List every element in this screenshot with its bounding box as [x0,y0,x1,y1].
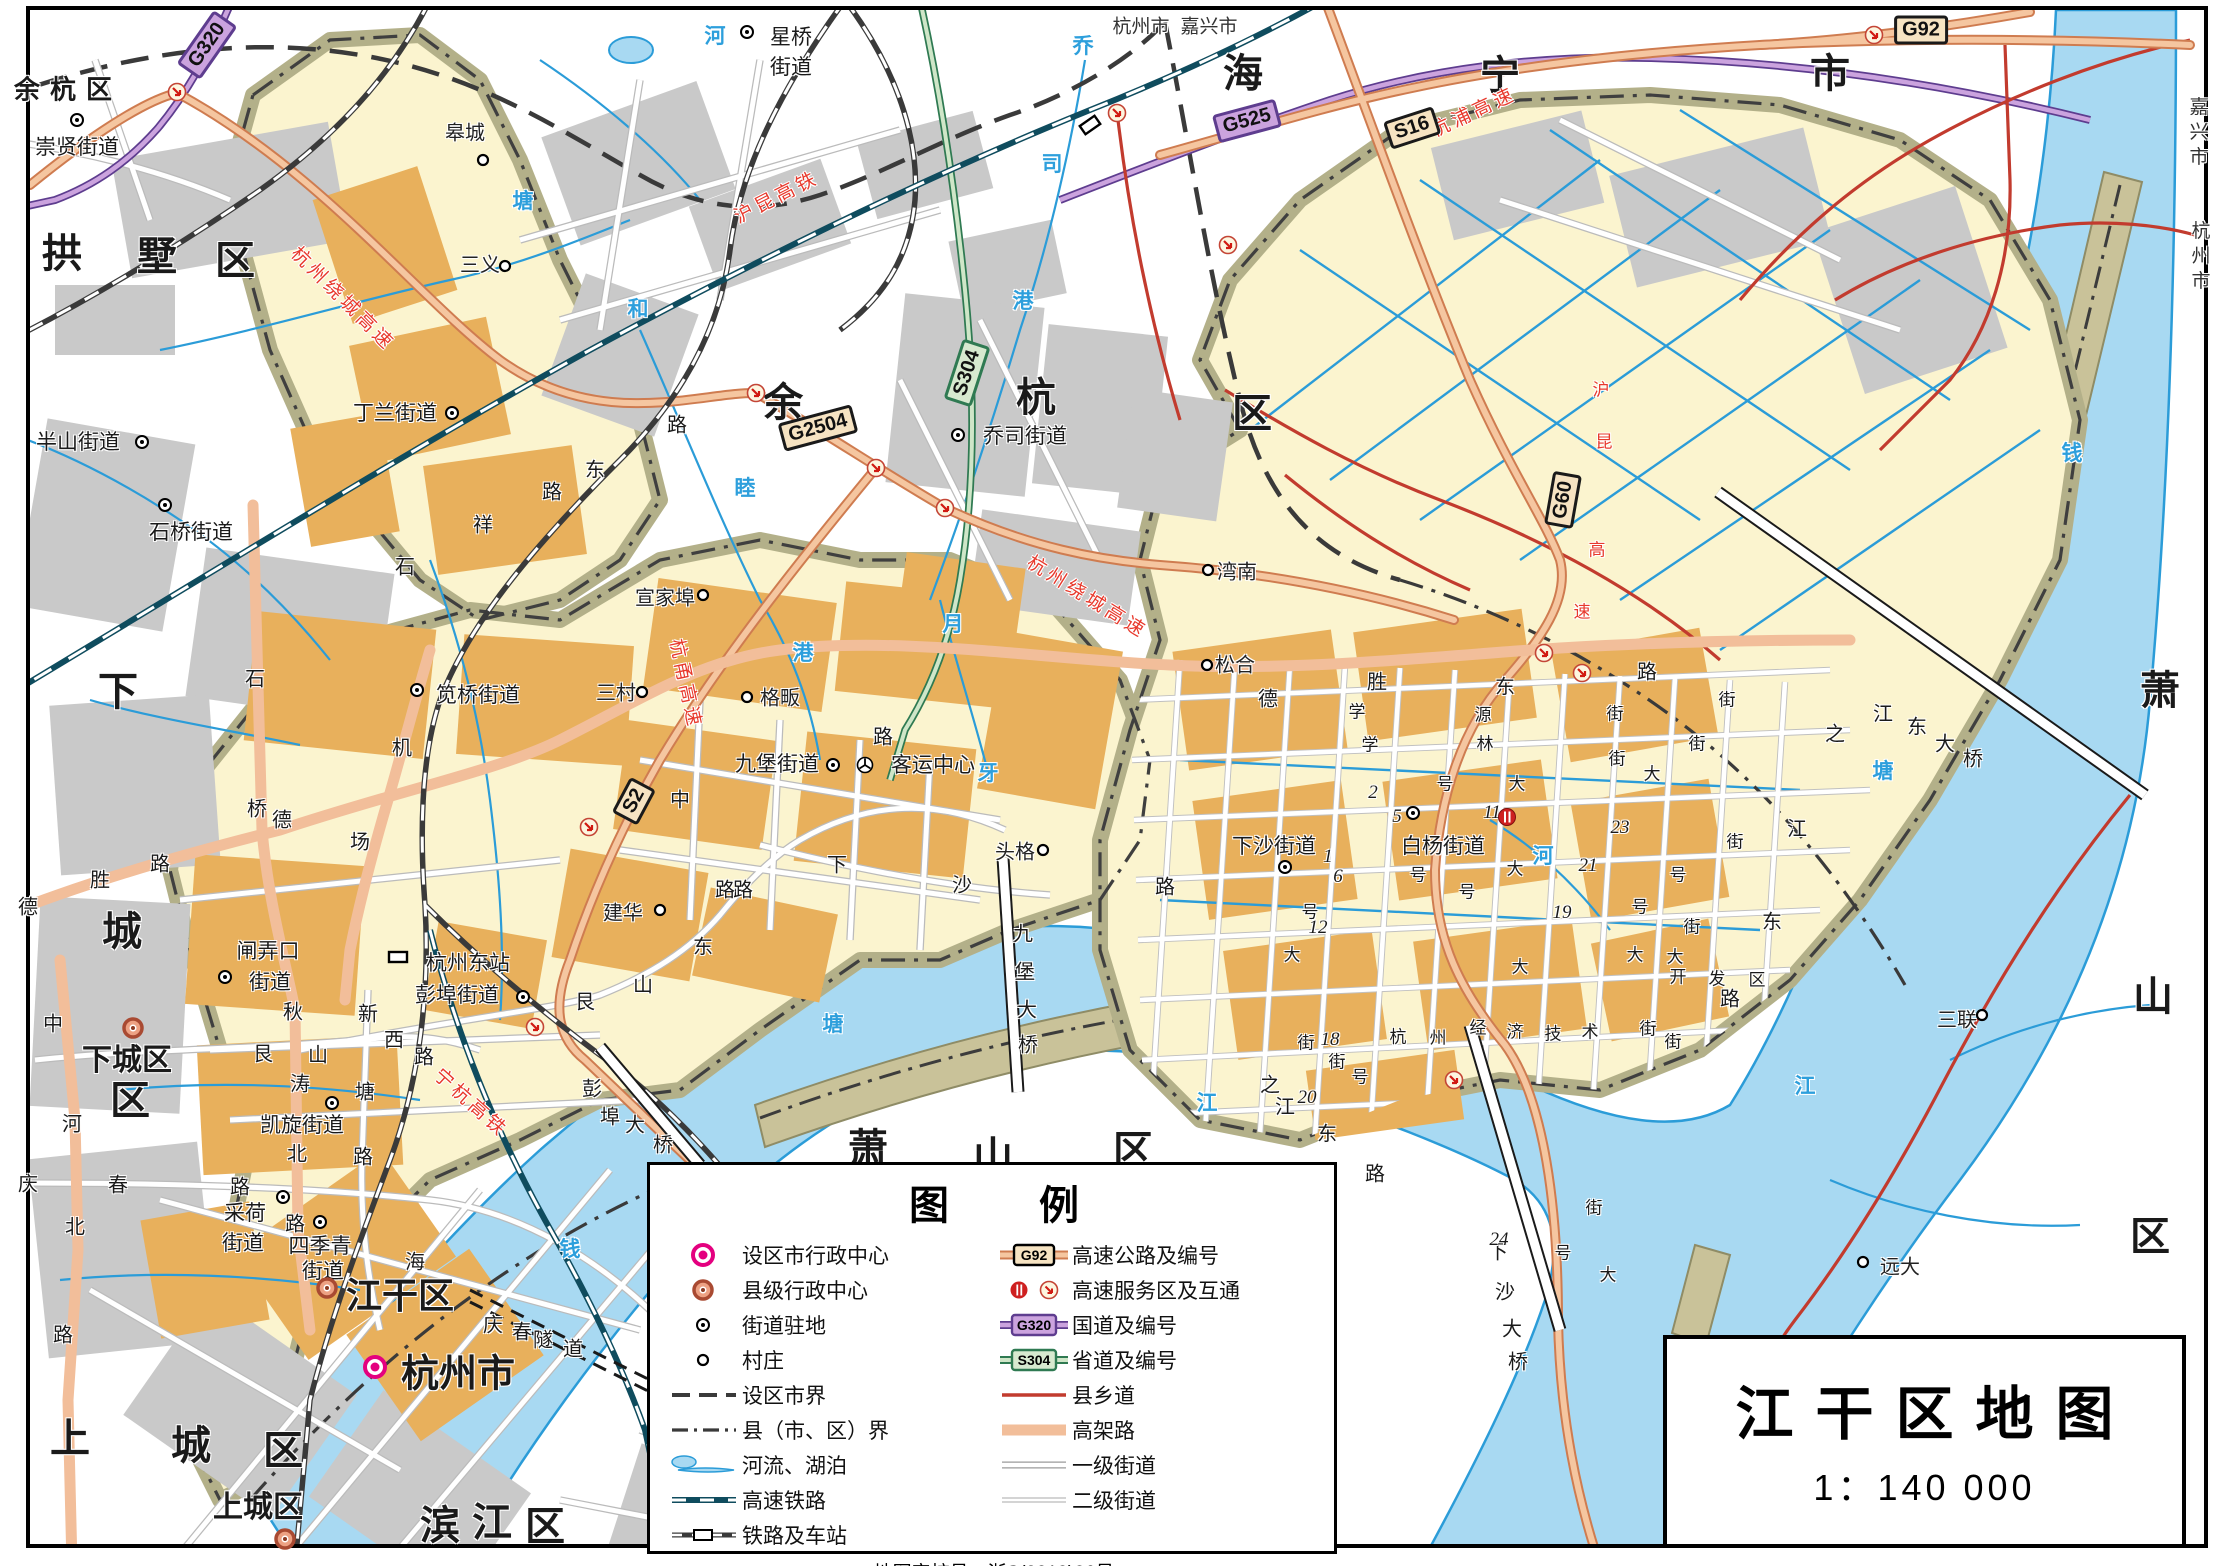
map-label: 技 [1545,1020,1562,1045]
legend-title: 图例 [664,1173,1324,1231]
map-label: 州 [1430,1024,1447,1049]
map-label: 学 [1349,698,1366,723]
water-label: 塘 [513,185,534,215]
map-label: 区 [2130,1204,2170,1262]
map-label: 东 [585,454,605,483]
map-label: 石 [245,663,265,692]
legend-item-right-5: 高架路 [994,1412,1324,1447]
subdistrict-marker [739,24,755,40]
subdistrict-marker [69,112,85,128]
map-label: 东 [1762,906,1782,935]
map-label: 江干区 [346,1267,454,1319]
village-marker [1856,1255,1870,1269]
legend-panel: 图例 设区市行政中心县级行政中心街道驻地村庄设区市界县（市、区）界河流、湖泊高速… [647,1162,1337,1554]
map-label: 石桥街道 [149,516,233,546]
village-marker [1200,658,1214,672]
subdistrict-marker [515,989,531,1005]
map-label: 街 [1586,1194,1603,1219]
interchange-icon [1572,663,1592,683]
interchange-icon [866,458,886,478]
legend-label: 设区市行政中心 [742,1240,889,1270]
interchange-icon [579,817,599,837]
map-label: 区 [215,228,255,286]
map-label: 杭 [1390,1023,1407,1048]
legend-item-left-0: 设区市行政中心 [664,1237,994,1272]
map-label: 20 [1298,1087,1317,1109]
map-label: 街 [1665,1028,1682,1053]
map-label: 路 [353,1141,373,1170]
village-marker [740,690,754,704]
map-label: 号 [1632,893,1649,918]
map-label: 海 [1223,41,1263,99]
map-label: 嘉兴市 [2184,97,2211,172]
village-marker [476,153,490,167]
legend-label: 县（市、区）界 [742,1415,889,1445]
subdistrict-marker [217,969,233,985]
legend-item-right-2: G320国道及编号 [994,1307,1324,1342]
legend-icon-village [664,1353,742,1367]
subdistrict-marker [134,434,150,450]
map-label: 号 [1437,770,1454,795]
map-label: 6 [1333,866,1343,888]
map-label: 笕桥街道 [436,679,520,709]
map-label: 杭州市 [2186,221,2213,296]
map-label: 街 [1689,730,1706,755]
map-label: 街 [1719,686,1736,711]
map-label: 杭州东站 [426,947,510,977]
legend-item-right-0: G92高速公路及编号 [994,1237,1324,1272]
map-label: 桥 [1508,1346,1528,1375]
legend-item-left-5: 县（市、区）界 [664,1412,994,1447]
water-label: 牙 [978,757,999,787]
water-label: 塘 [1873,755,1894,785]
map-label: 秋 [283,996,303,1025]
map-label: 格畈 [760,682,800,711]
legend-item-right-4: 县乡道 [994,1377,1324,1412]
bus-terminal-icon [856,756,874,774]
legend-label: 高速服务区及互通 [1072,1275,1240,1305]
map-label: 江 [472,1490,512,1548]
legend-label: 县级行政中心 [742,1275,868,1305]
map-label: 大 [1507,855,1524,880]
map-label: 隧 [533,1324,553,1353]
legend-label: 铁路及车站 [742,1520,847,1550]
svg-text:S304: S304 [1018,1352,1051,1368]
map-label: 路 [1637,656,1657,685]
map-label: 杭 [1016,365,1056,423]
map-label: 山 [2133,964,2173,1022]
map-label: 彭埠街道 [415,979,499,1009]
map-label: 德 [272,804,292,833]
county-admin-center-marker [120,1015,146,1041]
map-label: 凯旋街道 [260,1109,344,1139]
service-area-icon [1497,807,1517,827]
map-label: 5 [1392,806,1402,828]
subdistrict-marker [157,497,173,513]
map-label: 街 [1727,828,1744,853]
map-label: 经 [1470,1014,1487,1039]
interchange-icon [525,1017,545,1037]
svg-text:G320: G320 [1017,1317,1051,1333]
map-label: 艮 [253,1038,273,1067]
route-shield-G92: G92 [1894,16,1948,45]
water-label: 港 [1013,285,1034,315]
map-label: 嘉兴市 [1180,12,1237,39]
legend-label: 村庄 [742,1345,784,1375]
map-label: 桥 [1963,743,1983,772]
map-label: 场 [350,826,370,855]
county-admin-center-marker [272,1526,298,1552]
map-label: 路 [1155,871,1175,900]
map-label: 德 [1258,683,1278,712]
map-label: 湾南 [1217,556,1257,585]
map-label: 大 [1512,953,1529,978]
legend-label: 县乡道 [1072,1380,1135,1410]
map-label: 余杭区 [14,70,122,107]
map-label: 济 [1507,1018,1524,1043]
map-label: 埠 [600,1101,620,1130]
village-marker [653,903,667,917]
subdistrict-marker [1277,859,1293,875]
map-label: 街道 [249,966,291,996]
legend-icon-railway [664,1528,742,1542]
map-label: 胜 [1367,666,1387,695]
map-label: 大 [1935,728,1955,757]
map-label: 闸弄口 [237,935,300,965]
subdistrict-marker [1405,805,1421,821]
map-label: 头格 [995,836,1035,865]
interchange-icon [1534,643,1554,663]
map-label: 源 [1475,701,1492,726]
map-label: 河 [62,1108,82,1137]
map-label: 市 [1810,41,1850,99]
legend-item-right-1: 高速服务区及互通 [994,1272,1324,1307]
map-label: 街 [1684,913,1701,938]
map-label: 发 [1709,965,1726,990]
map-label: 路 [667,409,687,438]
railway-station-icon [387,950,409,964]
legend-label: 高架路 [1072,1415,1135,1445]
map-label: 中 [670,784,690,813]
map-label: 三村 [596,677,636,706]
map-label: 庆 [483,1309,503,1338]
map-label: 城 [171,1413,211,1471]
city-admin-center-marker [360,1352,390,1382]
map-label: 杭州市 [401,1343,515,1398]
legend-label: 河流、湖泊 [742,1450,847,1480]
legend-label: 设区市界 [742,1380,826,1410]
legend-approval-number: 地图审核号：浙S(2019)36号 [664,1558,1324,1566]
map-label: 江 [1787,813,1807,842]
water-label: 乔 [1073,30,1094,60]
interchange-icon [1444,1070,1464,1090]
map-label: 上 [50,1406,90,1464]
legend-icon-street2 [994,1496,1072,1504]
map-label: 堡 [1015,956,1035,985]
map-label: 乔司街道 [983,420,1067,450]
map-label: 路 [733,874,753,903]
legend-label: 高速公路及编号 [1072,1240,1219,1270]
legend-item-left-2: 街道驻地 [664,1307,994,1342]
legend-item-left-7: 高速铁路 [664,1482,994,1517]
map-label: 术 [1582,1018,1599,1043]
map-label: 下城区 [82,1035,172,1079]
map-label: 街 [1329,1048,1346,1073]
map-label: 号 [1459,878,1476,903]
legend-label: 一级街道 [1072,1450,1156,1480]
legend-item-right-7: 二级街道 [994,1482,1324,1517]
map-label: 春 [512,1316,532,1345]
expressway-name-label: 高 [1589,536,1606,561]
map-label: 拱 [42,221,82,279]
map-label: 江 [1873,698,1893,727]
map-label: 街 [1607,700,1624,725]
legend-item-left-8: 铁路及车站 [664,1517,994,1552]
map-label: 路 [1365,1158,1385,1187]
map-label: 号 [1670,861,1687,886]
water-label: 港 [793,637,814,667]
map-label: 大 [1017,994,1037,1023]
map-label: 东 [1495,671,1515,700]
map-label: 城 [102,899,142,957]
map-label: 庆 [18,1168,38,1197]
map-label: 崇贤街道 [35,131,119,161]
map-label: 萧 [2140,658,2180,716]
legend-icon-subdistrict [664,1317,742,1333]
map-label: 江 [1275,1091,1295,1120]
map-label: 彭 [582,1073,602,1102]
legend-icon-county-boundary [664,1425,742,1435]
map-label: 24 [1490,1229,1509,1251]
map-label: 大 [1600,1261,1617,1286]
village-marker [635,685,649,699]
map-label: 山 [633,969,653,998]
map-label: 21 [1579,855,1598,877]
legend-icon-hsr [664,1495,742,1505]
map-label: 号 [1410,861,1427,886]
map-label: 墅 [137,224,177,282]
map-label: 1 [1323,846,1333,868]
map-label: 路 [542,476,562,505]
map-label: 北 [287,1138,307,1167]
subdistrict-marker [444,405,460,421]
map-label: 半山街道 [36,426,120,456]
map-label: 桥 [247,793,267,822]
map-label: 胜 [90,864,110,893]
map-label: 松合 [1215,649,1255,678]
subdistrict-marker [324,1095,340,1111]
map-label: 之 [1825,718,1845,747]
legend-left-column: 设区市行政中心县级行政中心街道驻地村庄设区市界县（市、区）界河流、湖泊高速铁路铁… [664,1237,994,1552]
water-label: 江 [1795,1070,1816,1100]
legend-label: 高速铁路 [742,1485,826,1515]
map-label: 路 [150,848,170,877]
map-label: 桥 [653,1129,673,1158]
subdistrict-marker [312,1214,328,1230]
map-label: 中 [43,1008,63,1037]
map-label: 街 [1640,1015,1657,1040]
legend-label: 国道及编号 [1072,1310,1177,1340]
map-label: 远大 [1880,1251,1920,1280]
map-label: 路 [715,874,735,903]
map-label: 大 [1627,941,1644,966]
map-label: 滨 [420,1493,460,1551]
map-scale: 1：140 000 [1667,1459,2182,1511]
legend-icon-service [994,1279,1072,1301]
legend-icon-provincial: S304 [994,1347,1072,1373]
map-label: 大 [1667,943,1684,968]
map-label: 大 [1509,770,1526,795]
svg-text:G92: G92 [1021,1247,1048,1263]
map-label: 三义 [460,249,500,278]
map-label: 街道 [222,1227,264,1257]
water-label: 司 [1042,148,1063,178]
county-admin-center-marker [314,1275,340,1301]
legend-icon-expressway: G92 [994,1242,1072,1268]
interchange-icon [935,498,955,518]
map-label: 星桥 [770,21,812,51]
map-label: 路 [230,1171,250,1200]
map-label: 三联 [1937,1004,1977,1033]
interchange-icon [1218,235,1238,255]
map-label: 丁兰街道 [353,397,437,427]
map-label: 九 [1013,918,1033,947]
map-label: 采荷 [224,1197,266,1227]
legend-label: 二级街道 [1072,1485,1156,1515]
map-label: 2 [1368,782,1378,804]
expressway-name-label: 速 [1574,598,1591,623]
legend-label: 街道驻地 [742,1310,826,1340]
village-marker [498,259,512,273]
subdistrict-marker [275,1189,291,1205]
village-marker [1975,1008,1989,1022]
map-label: 祥 [473,509,493,538]
map-label: 区 [1749,966,1766,991]
map-canvas: 余杭区拱墅区余杭区海宁市下城区上城区滨江区萧山区萧山区杭州市嘉兴市嘉兴市杭州市下… [0,0,2220,1566]
interchange-icon [1864,25,1884,45]
map-label: 区 [1232,381,1272,439]
village-marker [696,588,710,602]
map-label: 23 [1611,817,1630,839]
legend-item-left-1: 县级行政中心 [664,1272,994,1307]
map-label: 街道 [770,51,812,81]
interchange-icon [167,82,187,102]
map-label: 艮 [575,986,595,1015]
map-label: 机 [392,732,412,761]
water-label: 江 [1197,1087,1218,1117]
water-label: 河 [705,20,726,50]
subdistrict-marker [825,757,841,773]
map-label: 山 [308,1039,328,1068]
map-label: 东 [1317,1118,1337,1147]
legend-icon-city-boundary [664,1390,742,1400]
map-label: 皋城 [445,117,485,146]
subdistrict-marker [950,427,966,443]
map-title-box: 江干区地图 1：140 000 [1663,1335,2186,1548]
map-label: 号 [1352,1063,1369,1088]
expressway-name-label: 昆 [1596,428,1613,453]
legend-item-right-3: S304省道及编号 [994,1342,1324,1377]
map-label: 新 [358,998,378,1027]
map-label: 号 [1302,898,1319,923]
water-label: 钱 [2062,437,2083,467]
map-label: 大 [1644,760,1661,785]
map-label: 九堡街道 [735,748,819,778]
map-label: 桥 [1018,1029,1038,1058]
legend-item-right-6: 一级街道 [994,1447,1324,1482]
map-label: 下 [827,849,847,878]
subdistrict-marker [409,682,425,698]
map-label: 沙 [952,869,972,898]
map-label: 涛 [290,1068,310,1097]
water-label: 钱 [560,1233,581,1263]
legend-icon-city-admin [664,1240,742,1270]
water-label: 塘 [823,1008,844,1038]
map-label: 道 [563,1333,583,1362]
map-label: 区 [525,1494,565,1552]
expressway-name-label: 沪 [1593,376,1610,401]
legend-item-left-6: 河流、湖泊 [664,1447,994,1482]
village-marker [1201,563,1215,577]
legend-icon-national: G320 [994,1312,1072,1338]
interchange-icon [1107,103,1127,123]
map-label: 下沙街道 [1232,830,1316,860]
map-label: 杭州市 [1112,12,1169,39]
map-label: 路 [414,1041,434,1070]
map-label: 建华 [603,897,643,926]
map-label: 大 [625,1109,645,1138]
legend-icon-elevated [994,1423,1072,1437]
map-label: 19 [1553,902,1572,924]
legend-icon-county-road [994,1391,1072,1399]
legend-icon-street1 [994,1460,1072,1470]
map-label: 号 [1555,1239,1572,1264]
map-label: 客运中心 [891,749,975,779]
map-label: 林 [1477,730,1494,755]
legend-right-column: G92高速公路及编号高速服务区及互通G320国道及编号S304省道及编号县乡道高… [994,1237,1324,1552]
legend-item-left-3: 村庄 [664,1342,994,1377]
map-label: 路 [873,721,893,750]
village-marker [1036,843,1050,857]
map-label: 路 [285,1208,305,1237]
map-label: 上城区 [213,1482,303,1526]
map-label: 街 [1609,745,1626,770]
map-label: 学 [1362,731,1379,756]
map-label: 大 [1502,1313,1522,1342]
water-label: 河 [1533,840,1554,870]
water-label: 和 [628,293,649,323]
map-label: 德 [18,891,38,920]
map-label: 白杨街道 [1401,830,1485,860]
legend-icon-county-admin [664,1277,742,1303]
map-label: 春 [108,1169,128,1198]
map-title: 江干区地图 [1667,1367,2182,1451]
map-label: 路 [53,1319,73,1348]
map-label: 宣家埠 [635,582,695,611]
map-label: 石 [395,551,415,580]
legend-item-left-4: 设区市界 [664,1377,994,1412]
legend-icon-river [664,1454,742,1476]
legend-label: 省道及编号 [1072,1345,1177,1375]
water-label: 睦 [735,472,756,502]
water-label: 月 [943,608,964,638]
map-label: 区 [263,1418,303,1476]
map-label: 下 [98,659,138,717]
map-label: 街 [1298,1029,1315,1054]
map-label: 塘 [355,1076,375,1105]
map-label: 沙 [1495,1276,1515,1305]
map-label: 东 [693,931,713,960]
